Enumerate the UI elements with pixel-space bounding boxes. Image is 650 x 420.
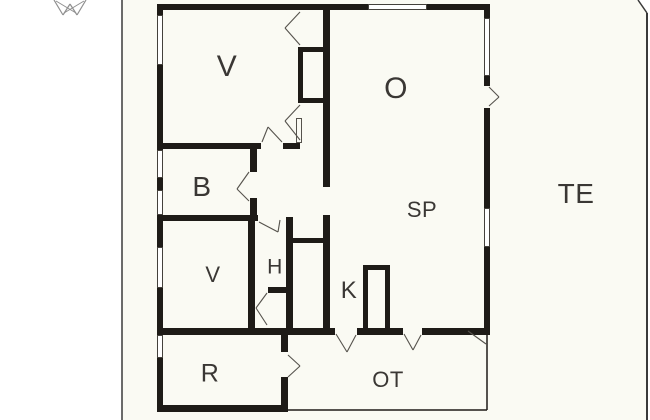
room-label-h: H	[267, 257, 283, 278]
wall-segment	[157, 143, 261, 149]
wall-segment	[157, 215, 258, 221]
wall-segment	[298, 47, 303, 103]
door-opening	[281, 352, 288, 377]
room-label-ot: OT	[372, 369, 404, 391]
window-symbol	[157, 190, 163, 215]
room-label-k: K	[341, 279, 358, 303]
window-symbol	[157, 247, 163, 288]
wall-segment	[250, 148, 257, 172]
wall-segment	[363, 265, 368, 332]
window-symbol	[157, 335, 163, 358]
room-label-v2: V	[205, 264, 220, 286]
wall-segment	[323, 215, 330, 330]
room-label-r: R	[201, 362, 220, 387]
wall-segment	[248, 220, 255, 330]
floor-plan-canvas: VOBTESPVHKROT	[0, 0, 650, 420]
door-opening	[335, 328, 357, 335]
wall-segment	[157, 405, 288, 412]
floor-plan-page: VOBTESPVHKROT	[0, 0, 650, 420]
wall-segment	[298, 98, 323, 103]
room-label-o: O	[384, 74, 408, 104]
wall-segment	[293, 238, 323, 243]
wall-segment	[363, 265, 390, 270]
window-symbol	[157, 150, 163, 178]
room-label-te: TE	[558, 180, 595, 208]
room-label-b: B	[192, 173, 211, 201]
wall-segment	[385, 265, 390, 332]
room-label-v1: V	[217, 52, 238, 82]
wall-segment	[286, 217, 293, 330]
door-leaf	[296, 118, 302, 143]
window-symbol	[157, 15, 163, 65]
wall-segment	[268, 287, 293, 293]
window-symbol	[484, 18, 490, 76]
window-symbol	[368, 4, 427, 10]
wall-segment	[323, 4, 330, 187]
room-label-sp: SP	[407, 199, 437, 221]
wall-segment	[283, 143, 300, 149]
door-opening	[484, 86, 490, 108]
window-symbol	[484, 208, 490, 247]
wall-segment	[298, 47, 323, 52]
door-opening	[403, 328, 422, 335]
